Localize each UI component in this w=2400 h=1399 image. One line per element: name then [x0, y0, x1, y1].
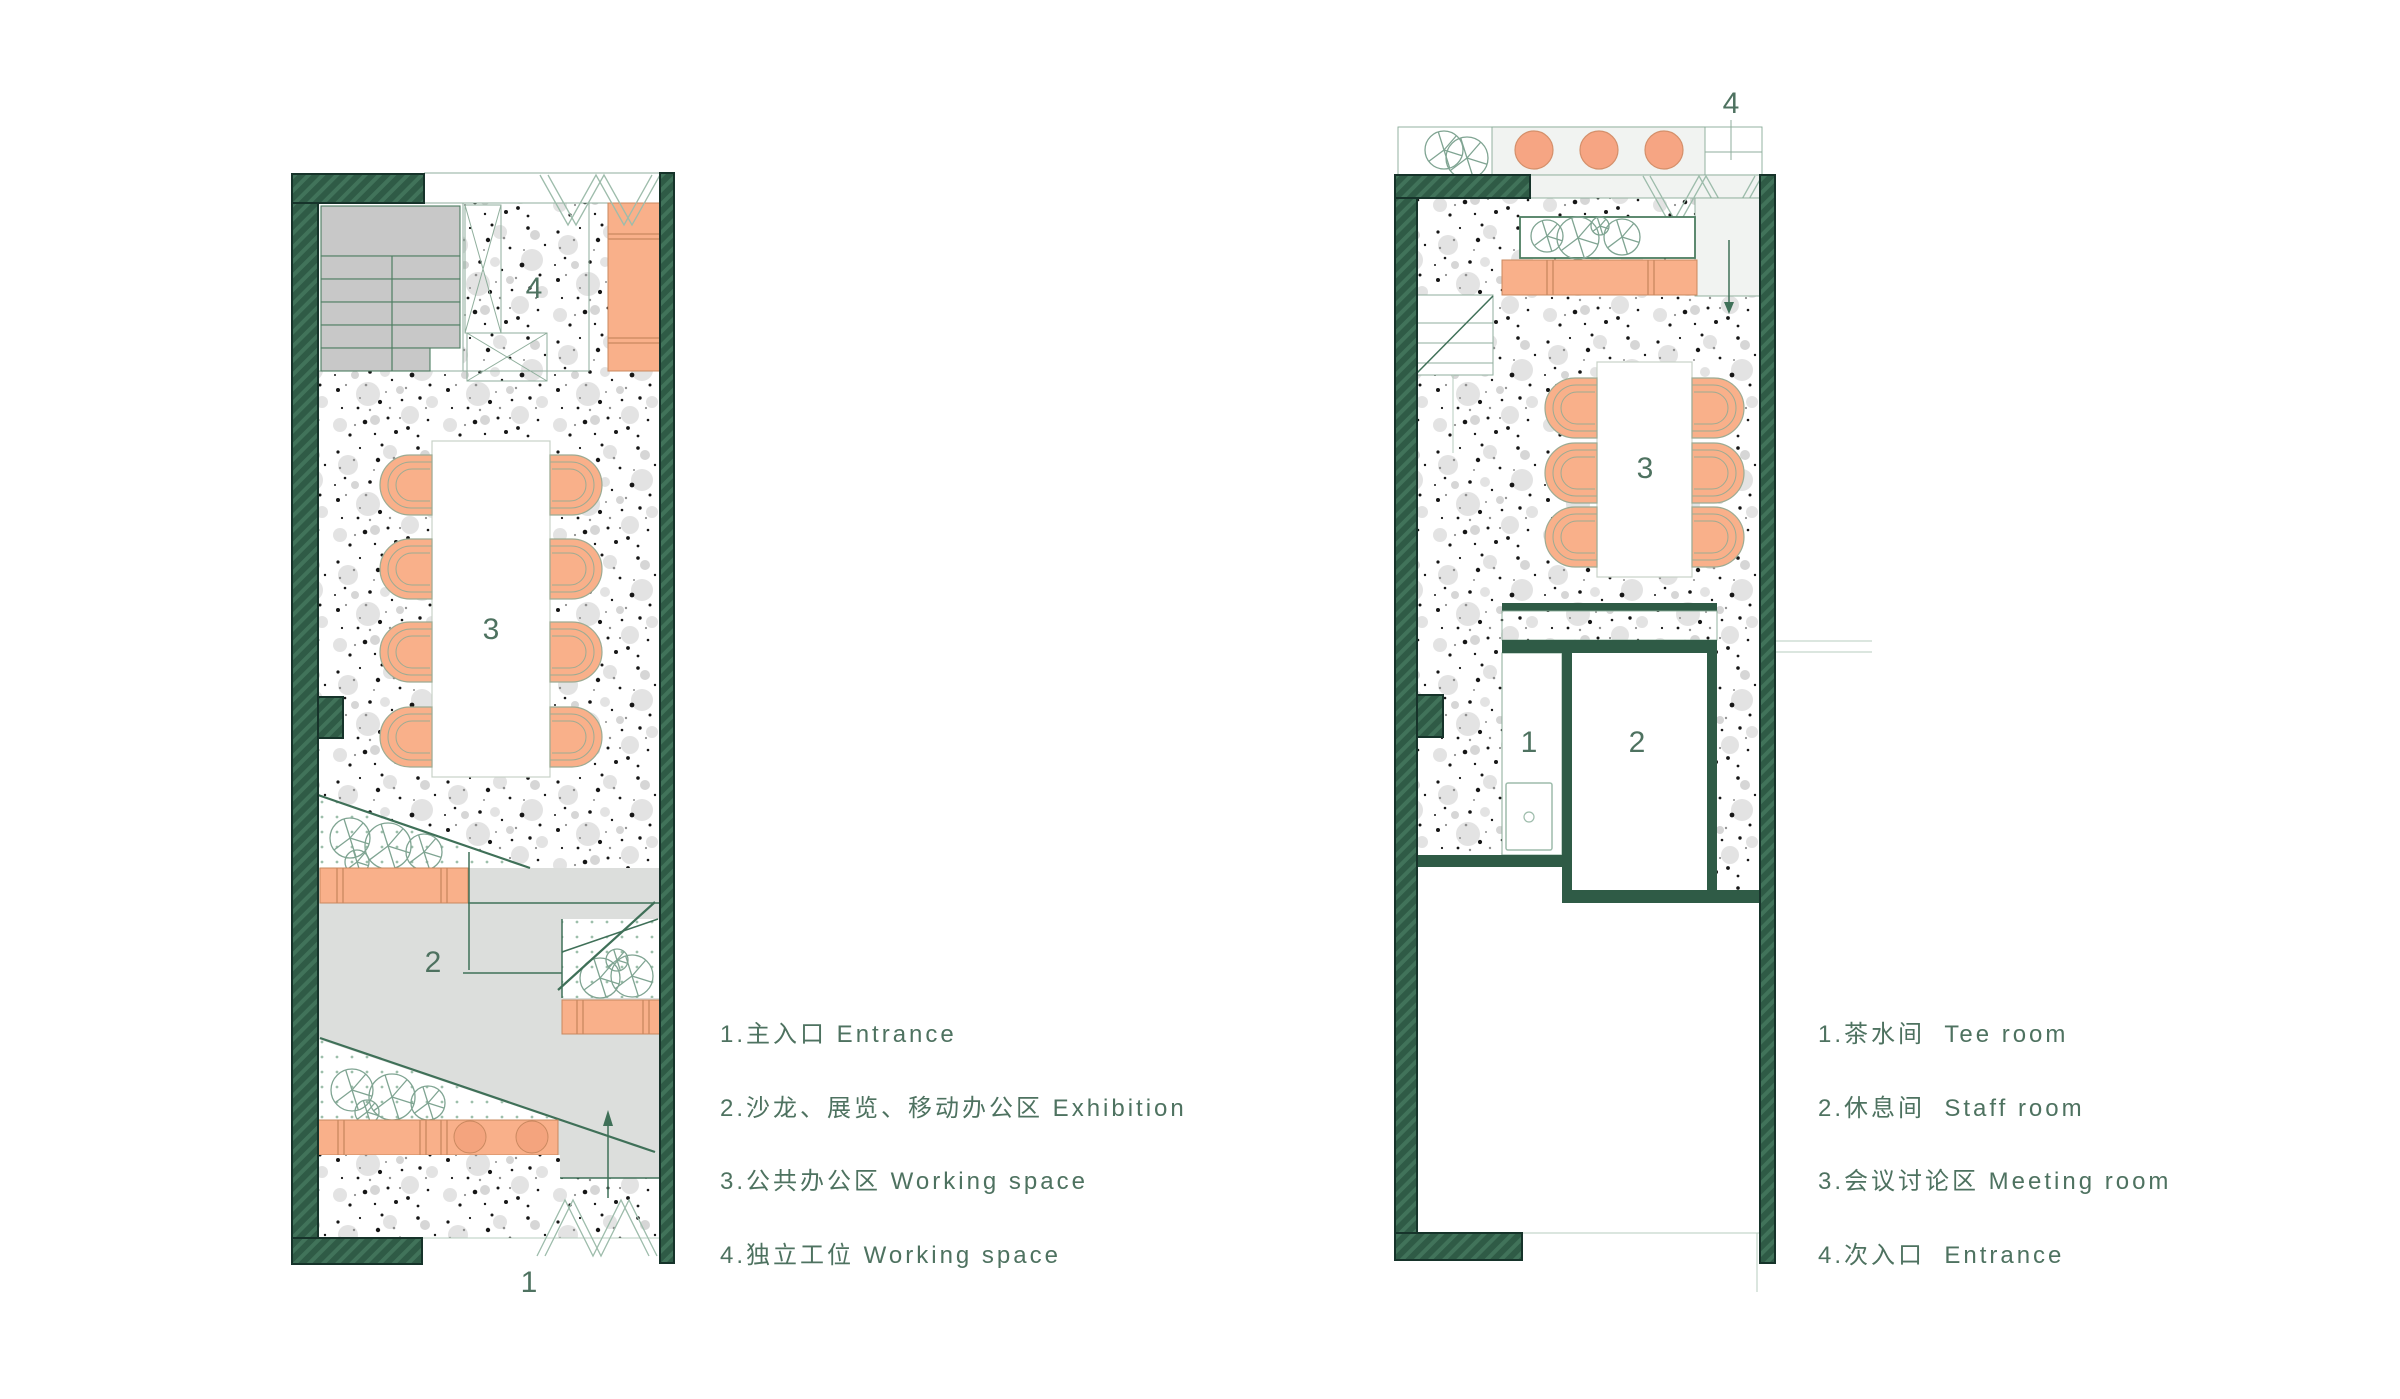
planter-box — [1520, 217, 1695, 259]
vacant-area — [1417, 867, 1562, 1233]
legend-item-tea-room: 1.茶水间 Tee room — [1818, 1020, 2068, 1050]
legend-item-working-space: 3.公共办公区 Working space — [720, 1167, 1088, 1197]
floor-plan-right: 4 3 1 2 — [1380, 70, 1800, 1310]
stool-icon — [454, 1121, 486, 1153]
label-staff-room: 2 — [1629, 726, 1646, 759]
staircase — [318, 203, 463, 371]
exterior-strip — [1398, 127, 1762, 179]
bench-seat — [1502, 260, 1697, 295]
label-main-entrance: 1 — [521, 1266, 538, 1299]
display-bench-1 — [320, 868, 468, 903]
label-meeting-room: 3 — [1637, 452, 1654, 485]
chairs-right-column — [1692, 378, 1744, 567]
legend-item-staff-room: 2.休息间 Staff room — [1818, 1094, 2085, 1124]
sink-icon — [1506, 783, 1552, 850]
legend-item-exhibition: 2.沙龙、展览、移动办公区 Exhibition — [720, 1094, 1187, 1124]
legend-item-meeting-room: 3.会议讨论区 Meeting room — [1818, 1167, 2171, 1197]
stool-icon — [1515, 131, 1553, 169]
staff-room — [1572, 653, 1707, 890]
stool-icon — [1645, 131, 1683, 169]
legend-item-entrance: 1.主入口 Entrance — [720, 1020, 957, 1050]
floor-plan-left: 3 4 2 1 — [260, 140, 700, 1310]
floor-plan-sheet: 3 4 2 1 — [0, 0, 2400, 1399]
label-exhibition: 2 — [425, 946, 442, 979]
display-bench-3 — [318, 1120, 558, 1155]
chairs-left-column — [1545, 378, 1597, 567]
terrazzo-patch — [318, 1155, 560, 1178]
label-secondary-entrance: 4 — [1723, 87, 1740, 120]
workstation-desk — [608, 203, 660, 371]
legend-item-secondary-entrance: 4.次入口 Entrance — [1818, 1241, 2064, 1271]
label-workstation: 4 — [526, 272, 543, 305]
vacant-area — [1562, 903, 1760, 1233]
display-bench-2 — [562, 1000, 660, 1034]
side-panel — [1695, 198, 1760, 296]
work-table — [432, 441, 550, 777]
label-working-space: 3 — [483, 613, 500, 646]
planting-area-right — [562, 919, 660, 998]
legend-item-workstation: 4.独立工位 Working space — [720, 1241, 1061, 1271]
label-tea-room: 1 — [1521, 726, 1538, 759]
stool-icon — [1580, 131, 1618, 169]
stool-icon — [516, 1121, 548, 1153]
